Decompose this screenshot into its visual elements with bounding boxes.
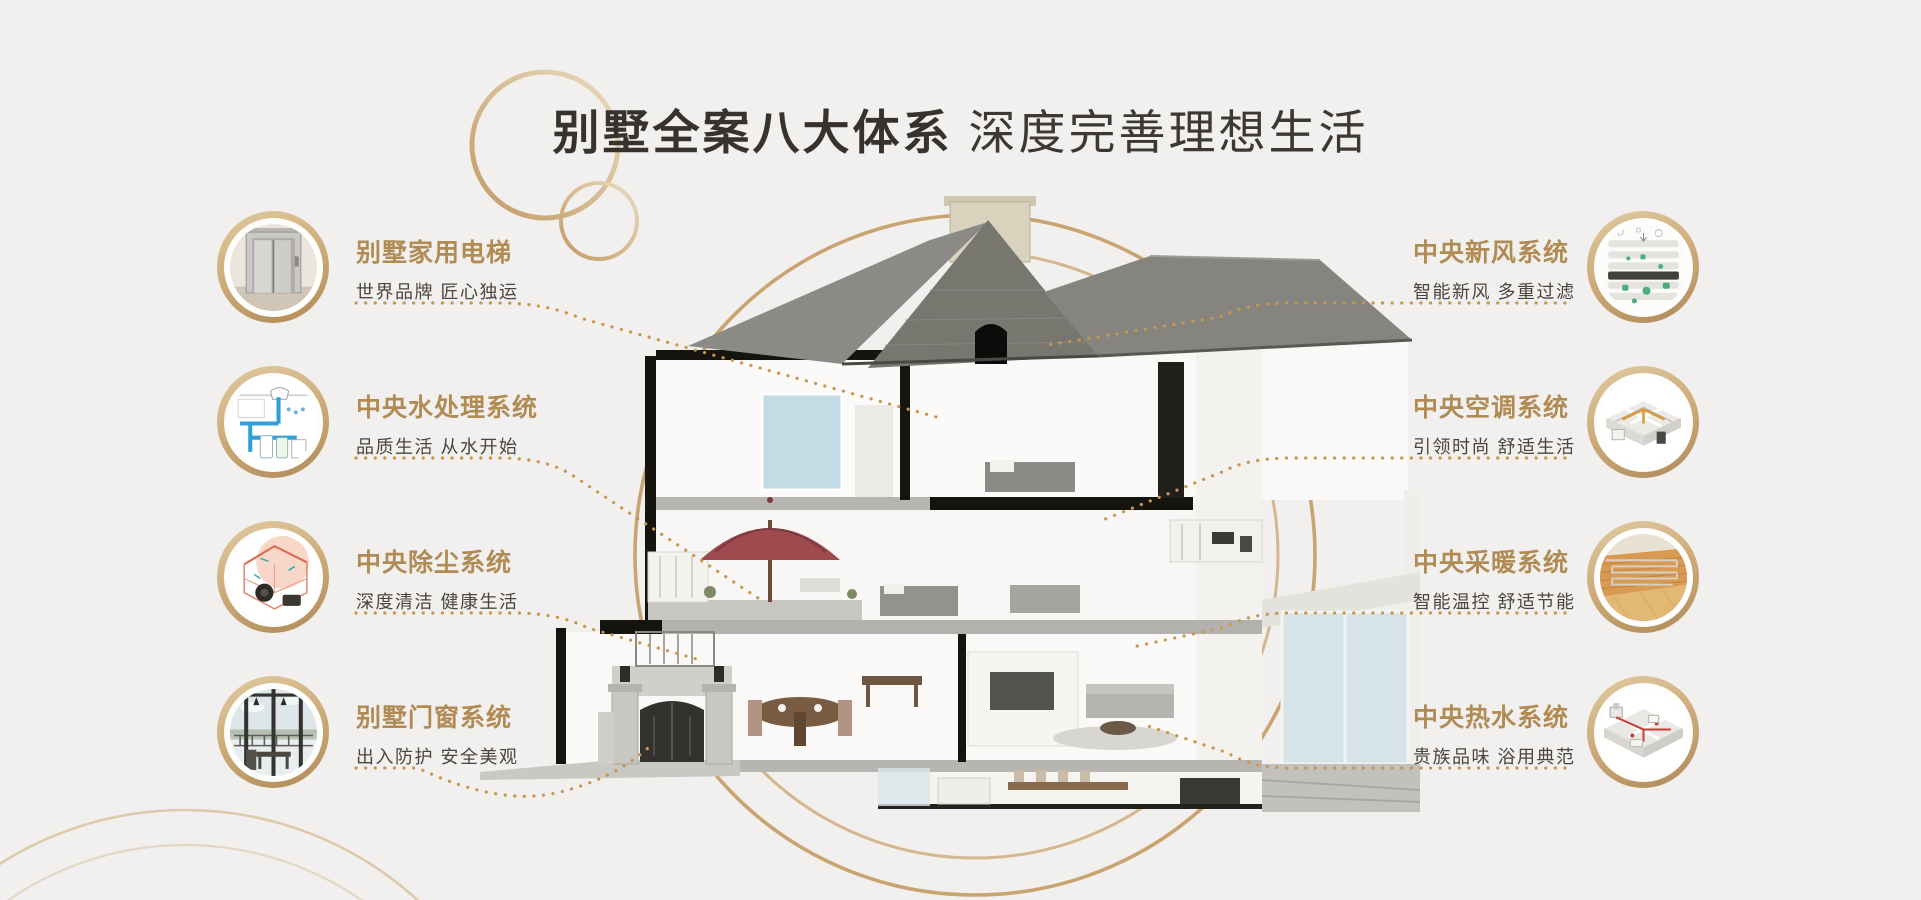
door-window-icon (217, 676, 329, 788)
system-subtitle: 品质生活 从水开始 (356, 433, 538, 459)
system-subtitle: 引领时尚 舒适生活 (1413, 433, 1576, 459)
hot-water-icon (1587, 676, 1699, 788)
system-title: 中央采暖系统 (1413, 543, 1576, 579)
system-subtitle: 深度清洁 健康生活 (356, 588, 519, 614)
system-title: 中央新风系统 (1413, 233, 1576, 269)
system-title: 中央水处理系统 (356, 388, 538, 424)
page-title-light: 深度完善理想生活 (969, 106, 1369, 159)
air-conditioning-icon (1587, 366, 1699, 478)
system-title: 别墅门窗系统 (356, 698, 519, 734)
system-subtitle: 出入防护 安全美观 (356, 743, 519, 769)
heating-icon (1587, 521, 1699, 633)
elevator-icon (217, 211, 329, 323)
corner-arcs (0, 810, 530, 900)
system-subtitle: 世界品牌 匠心独运 (356, 278, 519, 304)
system-title: 别墅家用电梯 (356, 233, 519, 269)
system-subtitle: 智能温控 舒适节能 (1413, 588, 1576, 614)
system-subtitle: 贵族品味 浴用典范 (1413, 743, 1576, 769)
pool-glass (762, 394, 842, 490)
system-title: 中央除尘系统 (356, 543, 519, 579)
water-treatment-icon (217, 366, 329, 478)
villa-house (480, 196, 1420, 812)
fresh-air-icon (1587, 211, 1699, 323)
page-title: 别墅全案八大体系深度完善理想生活 (0, 94, 1921, 163)
dust-removal-icon (217, 521, 329, 633)
system-title: 中央热水系统 (1413, 698, 1576, 734)
tv-wall (968, 652, 1078, 746)
system-title: 中央空调系统 (1413, 388, 1576, 424)
system-subtitle: 智能新风 多重过滤 (1413, 278, 1576, 304)
page-title-bold: 别墅全案八大体系 (553, 106, 953, 159)
